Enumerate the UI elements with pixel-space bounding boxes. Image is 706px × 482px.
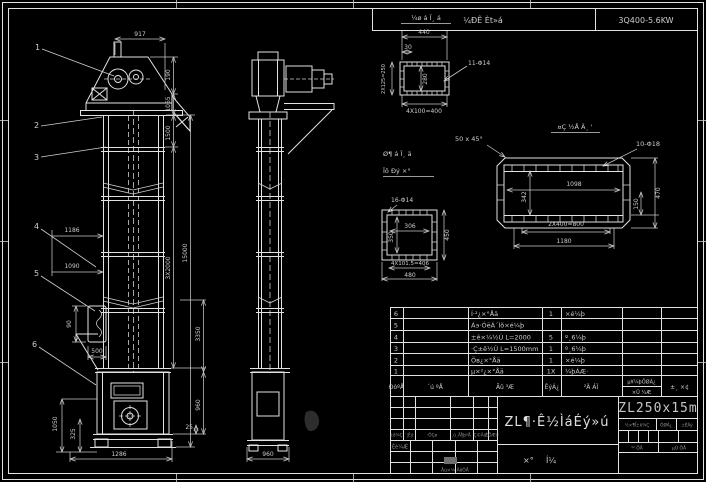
- dim-4x100: 4X100=400: [406, 108, 442, 115]
- parts-table-header: ÐòºÅ ´ú ºÅ Ãû ³Æ ÊýÁ¿ ²Ä ÁÏ µ¥¼þÖØÁ¿ ×Ü …: [389, 379, 689, 397]
- col-weight-top: µ¥¼þÖØÁ¿: [627, 379, 656, 386]
- chamfer-note: 50 x 45°: [455, 135, 483, 143]
- rev-cell: ·ÖÇø: [427, 433, 438, 438]
- row-name: µ×²¿×°Åä: [471, 367, 504, 376]
- dim-90: 90: [66, 320, 73, 328]
- row-name: Öв¿×°Åä: [471, 356, 501, 365]
- row-no: 4: [394, 334, 398, 342]
- row-mat: ×é¼þ: [565, 310, 585, 318]
- rev-cell: ´¦Êý: [405, 433, 414, 438]
- drawing-type-char-2: Í¼: [546, 454, 556, 465]
- parts-table: 6 Í·²¿×°Åä 1 ×é¼þ 5 Á϶·ÓëÁ´Ìõ×é¼þ 4 ±ê×¼…: [389, 307, 698, 474]
- front-casing: [101, 110, 165, 372]
- row-mat: º¸6¼þ: [565, 334, 586, 342]
- dim-1050: 1050: [52, 416, 59, 431]
- balloon-6: 6: [32, 340, 37, 349]
- dim-150: 150: [633, 198, 640, 210]
- sheet-no-label: µÚ ÕÅ: [672, 445, 687, 452]
- drawing-title: ZL¶·Ê½ÌáÉý»ú: [504, 414, 609, 430]
- cad-canvas: ¼ÐÊ Èt»á 3Q400-5.6KW: [0, 0, 706, 482]
- row-mat: ×é¼þ: [565, 357, 585, 365]
- title-block: ±ê¼Ç ´¦Êý ·ÖÇø ¸ü¸ÄÎļþºÅ Ç©Ãû ÈÕÆÚ Éè¼Æ …: [389, 396, 698, 474]
- row-qty: 1: [549, 357, 553, 365]
- dim-25: 25: [185, 424, 193, 431]
- dim-1065: 1065: [165, 96, 172, 111]
- row-name: Í·²¿×°Åä: [471, 309, 498, 318]
- dim-1286: 1286: [111, 451, 126, 458]
- drawing-type-char-1: ×°: [523, 456, 534, 465]
- sheet-total-label: ¹² ÕÅ: [631, 445, 644, 452]
- col-weight-bot: ×Ü ¼Æ: [632, 389, 651, 396]
- row-qty: 1: [549, 310, 553, 318]
- balloon-1: 1: [35, 43, 40, 52]
- dim-325: 325: [70, 428, 77, 440]
- row-no: 2: [394, 357, 398, 365]
- col-mat: ²Ä ÁÏ: [584, 384, 599, 391]
- flange-detail-title: ¼ø á Ï¸ á: [411, 13, 441, 22]
- dim-2x125: 2X125=250: [381, 64, 387, 94]
- side-view: 960: [247, 52, 334, 462]
- dim-1180: 1180: [556, 238, 571, 245]
- dim-960-bottom: 960: [262, 451, 274, 458]
- header-motor-spec: 3Q400-5.6KW: [618, 16, 673, 25]
- col-no: ÐòºÅ: [389, 384, 405, 391]
- row-no: 5: [394, 322, 398, 330]
- side-boot: [247, 369, 290, 452]
- col-name: Ãû ³Æ: [496, 384, 514, 391]
- smudge-artifact: [305, 411, 320, 431]
- big-detail: ¤Ç ½Å Ä¸ ' 50 x 45° 10-Φ18 1098 342 150 …: [455, 122, 662, 249]
- model-number: ZL250x15m: [618, 401, 697, 416]
- col-remark: ±¸ ×¢: [670, 384, 689, 391]
- balloon-4: 4: [34, 222, 39, 231]
- dim-190: 190: [165, 69, 172, 81]
- leader-11-d14: 11-Φ14: [468, 60, 490, 67]
- front-boot: [90, 369, 176, 448]
- row-name: ·Ç±ê½Ú L=1500mm: [471, 344, 538, 353]
- flange-detail: ¼ø á Ï¸ á 440 30 2X125=250 280 4X100=400…: [381, 13, 490, 115]
- approve-label: Åú×¼ ÄêÔÂ: [441, 467, 470, 474]
- design-label: Éè¼Æ: [392, 443, 408, 451]
- revision-strip: ±ê¼Ç ´¦Êý ·ÖÇø ¸ü¸ÄÎļþºÅ Ç©Ãû ÈÕÆÚ Éè¼Æ …: [389, 433, 498, 474]
- dim-15000: 15000: [182, 243, 189, 262]
- dim-3350: 3350: [195, 326, 202, 341]
- row-name: Á϶·ÓëÁ´Ìõ×é¼þ: [471, 321, 524, 330]
- header-left-cell: ¼ÐÊ Èt»á: [463, 14, 503, 25]
- col-code: ´ú ºÅ: [427, 384, 444, 391]
- dim-500: 500: [91, 348, 103, 355]
- revision-stamp: [444, 457, 457, 464]
- frame-center-ticks: [0, 0, 706, 482]
- side-dimensions: 960: [247, 447, 289, 462]
- dim-306: 306: [404, 223, 416, 230]
- col-qty: ÊýÁ¿: [545, 383, 560, 391]
- rev-cell: ÈÕÆÚ: [485, 433, 498, 438]
- dim-3x2000: 3X2000: [165, 256, 172, 279]
- row-qty: 5: [549, 334, 553, 342]
- dim-470: 470: [655, 187, 662, 199]
- dim-440: 440: [418, 29, 430, 36]
- front-balloons: 1 2 3 4 5 6: [32, 43, 114, 385]
- dim-1500: 1500: [165, 125, 172, 140]
- dim-4x101: 4X101.5=406: [391, 261, 430, 267]
- row-qty: 1X: [547, 368, 556, 376]
- leader-10-d18: 10-Φ18: [636, 140, 660, 148]
- row-no: 6: [394, 310, 398, 318]
- balloon-3: 3: [34, 153, 39, 162]
- dim-350: 350: [388, 231, 395, 243]
- scale-label: ±ÈÀý: [681, 423, 693, 428]
- weight-label: ÖØÁ¿: [660, 423, 672, 428]
- dim-1098: 1098: [566, 181, 581, 188]
- dim-480: 480: [404, 272, 416, 279]
- mid-detail-title-1: Ø¶ á Ï¸ ä: [383, 149, 412, 158]
- dim-280: 280: [422, 73, 429, 85]
- row-name: ±ê×¼½Ú L=2000: [471, 333, 531, 342]
- row-mat: º¸6¼þ: [565, 345, 586, 353]
- dim-917: 917: [134, 31, 146, 38]
- mid-detail: Ø¶ á Ï¸ ä Ïô Ðý ×° 16-Φ14 306 350 450 4X…: [382, 149, 451, 281]
- side-casing: [256, 112, 284, 372]
- row-no: 3: [394, 345, 398, 353]
- rev-cell: ±ê¼Ç: [389, 433, 402, 438]
- dim-342: 342: [521, 191, 528, 203]
- cad-drawing: ¼ÐÊ Èt»á 3Q400-5.6KW: [0, 0, 706, 482]
- leader-16-d14: 16-Φ14: [391, 197, 413, 204]
- dim-960-right: 960: [195, 399, 202, 411]
- dim-30: 30: [404, 44, 412, 51]
- dim-1090: 1090: [64, 263, 79, 270]
- dim-450: 450: [444, 229, 451, 241]
- rev-cell: ¸ü¸ÄÎļþºÅ: [451, 433, 471, 438]
- sheet-frame: [0, 0, 706, 482]
- dim-2x400: 2X400=800: [548, 221, 584, 228]
- balloon-2: 2: [34, 121, 39, 130]
- balloon-5: 5: [34, 269, 39, 278]
- dim-1186: 1186: [64, 227, 79, 234]
- row-mat: ¼þÁÆ·: [565, 367, 588, 376]
- front-dimensions: 917 190 1065 1500 3X2000 15000 3350 960: [52, 31, 206, 462]
- big-detail-outline: [497, 158, 630, 228]
- row-qty: 1: [549, 345, 553, 353]
- row-no: 1: [394, 368, 398, 376]
- big-detail-title: ¤Ç ½Å Ä¸ ': [557, 122, 592, 131]
- stage-label: ½×¶Î±ê¼Ç: [625, 423, 650, 428]
- mid-detail-title-2: Ïô Ðý ×°: [383, 166, 411, 175]
- front-view: 1 2 3 4 5 6 917 190: [32, 31, 206, 462]
